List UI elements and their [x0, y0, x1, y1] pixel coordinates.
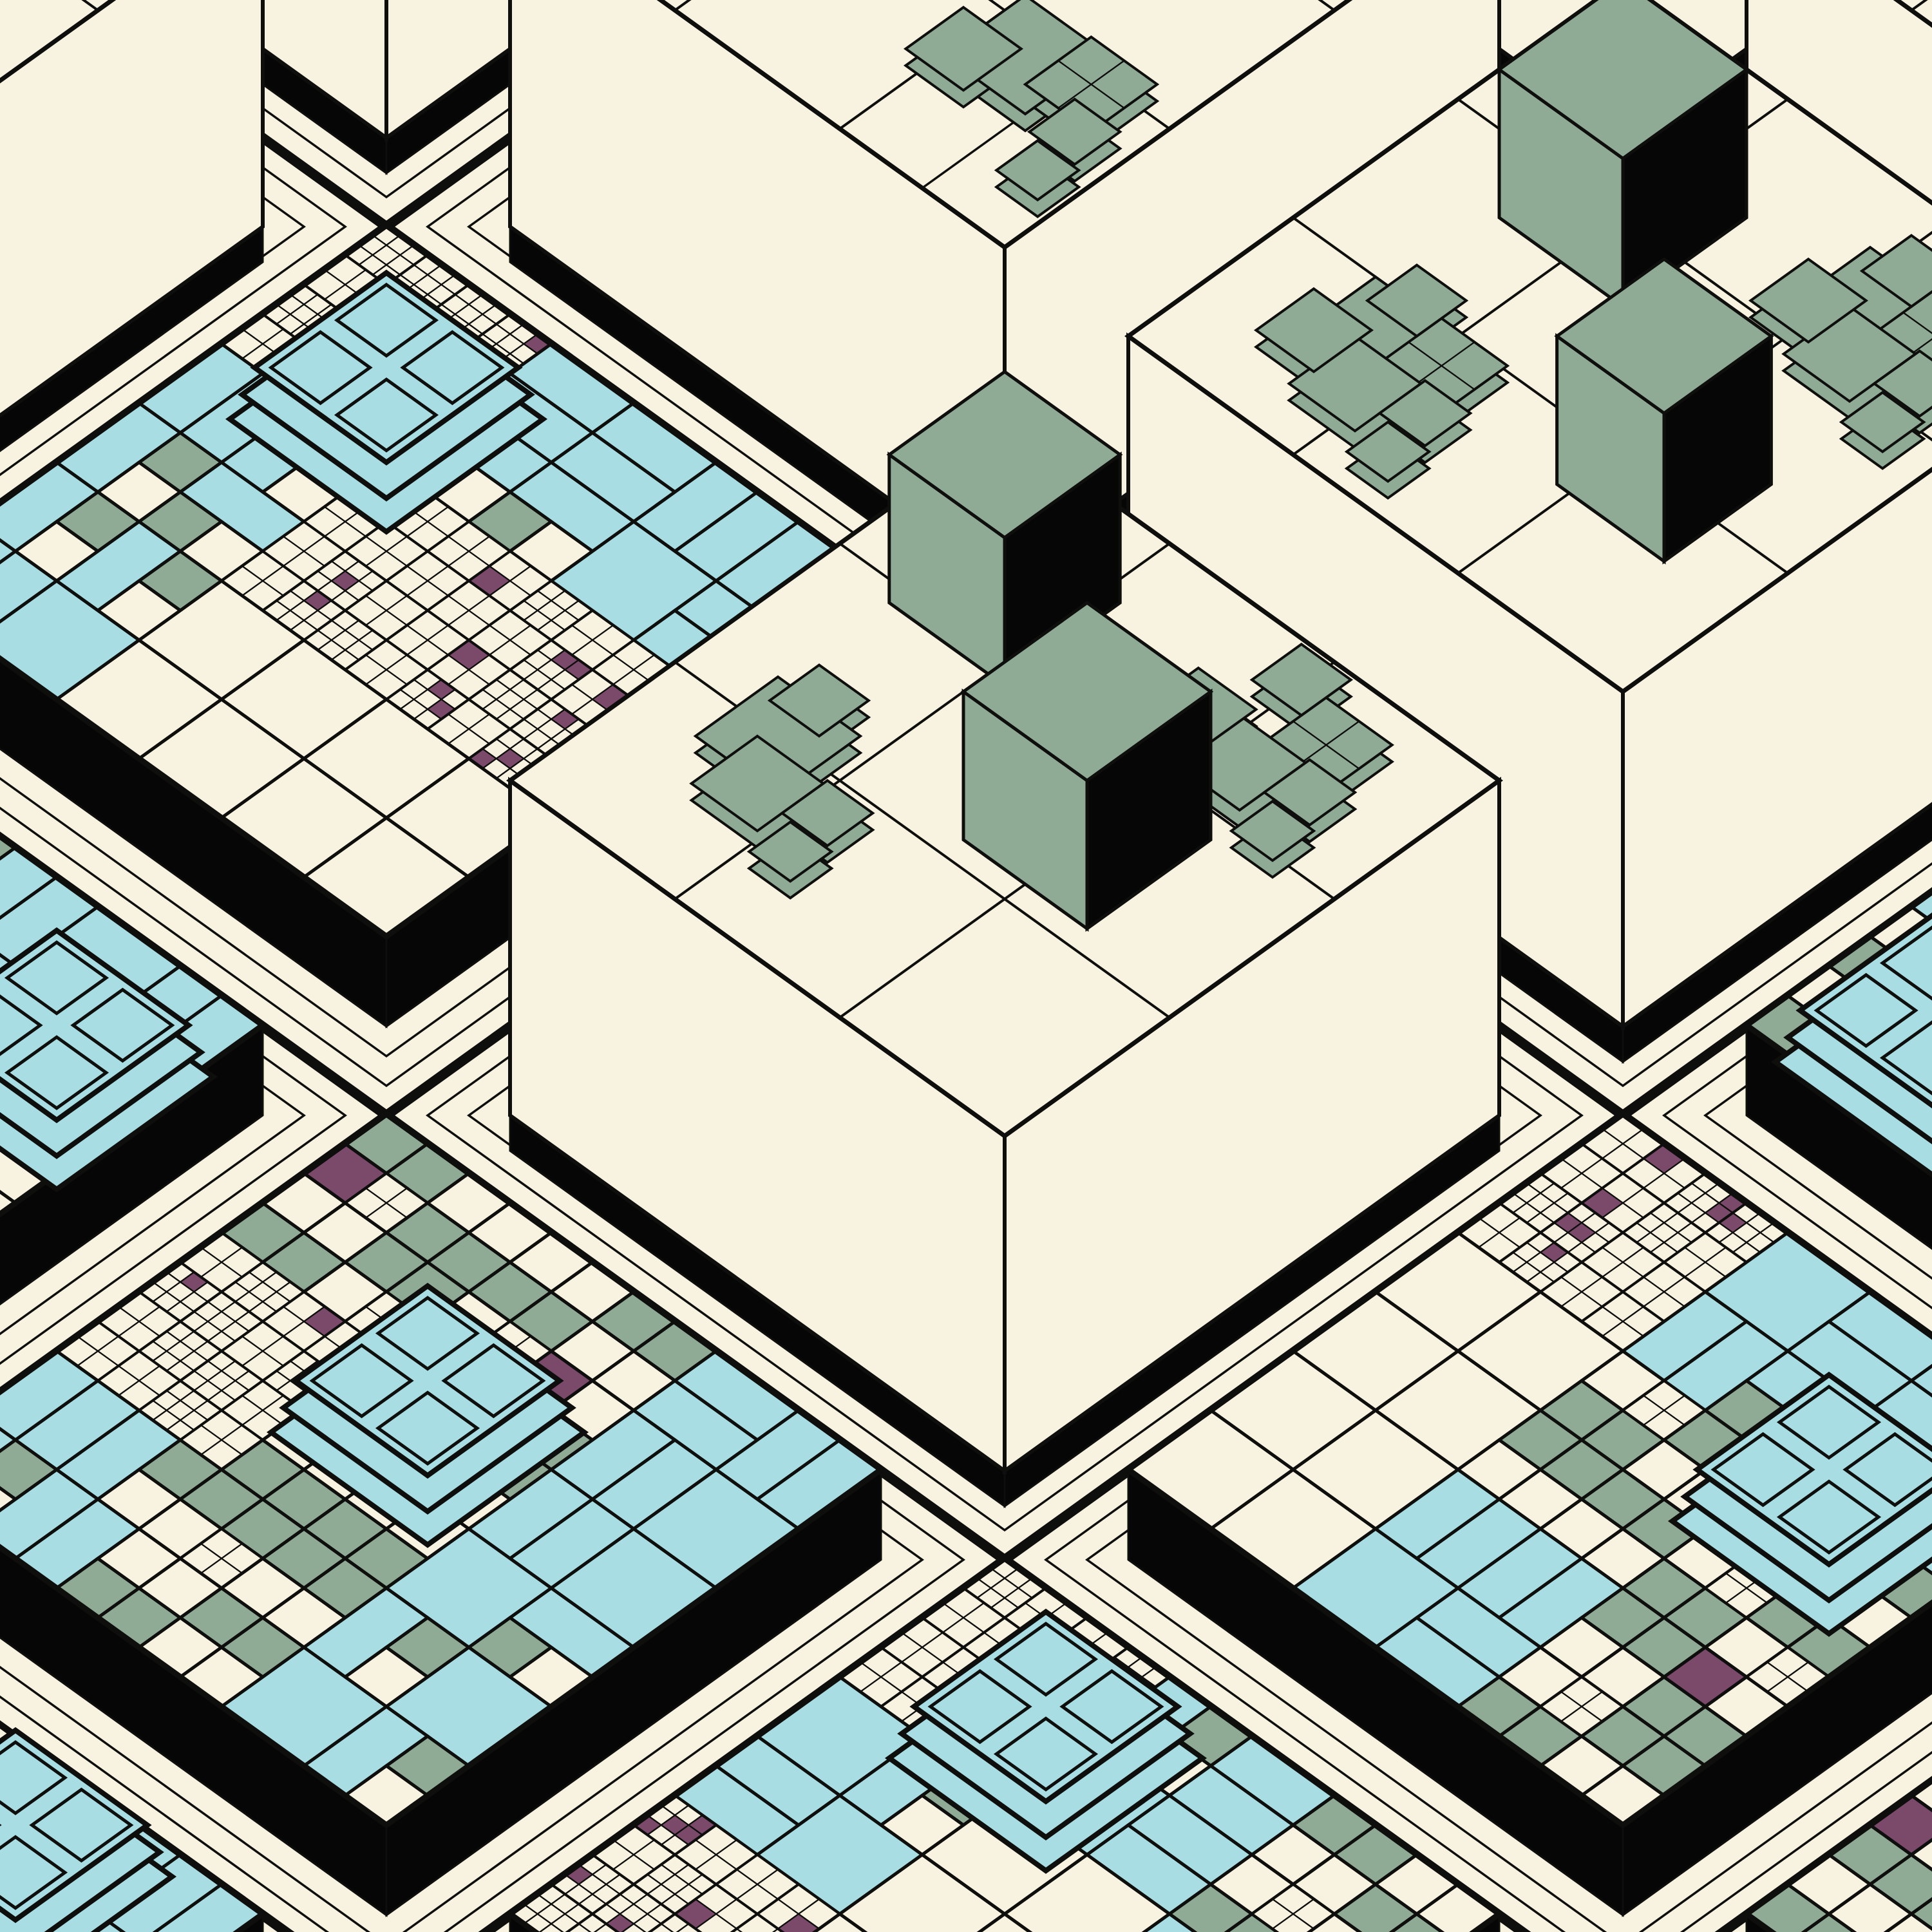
generative-iso-scene — [0, 0, 1932, 1932]
isometric-city-artwork — [0, 0, 1932, 1932]
